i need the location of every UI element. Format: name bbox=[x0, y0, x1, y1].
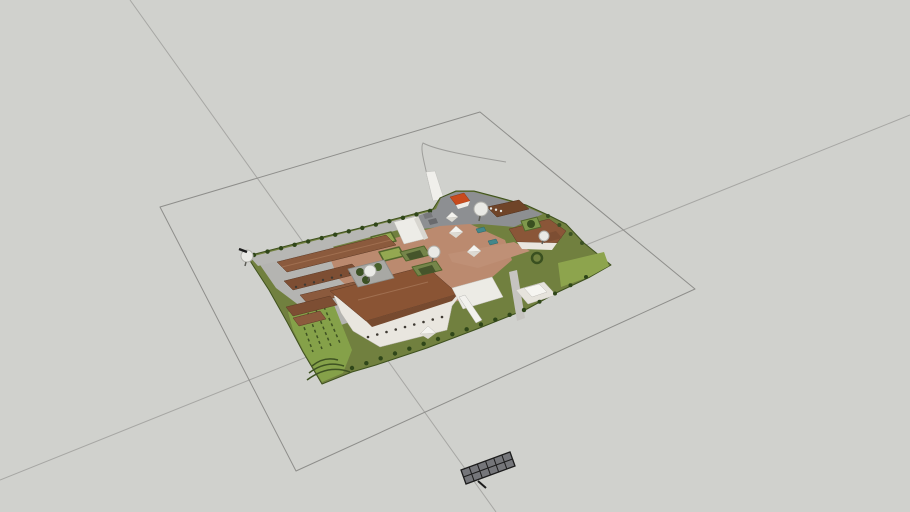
west-building-doors bbox=[295, 286, 297, 288]
perimeter-hedge-south bbox=[421, 342, 425, 346]
perimeter-hedge-north bbox=[265, 249, 269, 253]
perimeter-hedge-north bbox=[414, 212, 418, 216]
perimeter-hedge-north bbox=[374, 222, 378, 226]
perimeter-hedge-south bbox=[364, 361, 368, 365]
perimeter-hedge-south bbox=[507, 313, 511, 317]
west-building-doors bbox=[304, 283, 306, 285]
white-ball-tree bbox=[474, 202, 488, 216]
perimeter-hedge-south bbox=[436, 337, 440, 341]
parking-stripes bbox=[500, 210, 502, 212]
model-viewport-canvas[interactable] bbox=[0, 0, 910, 512]
main-building-windows bbox=[431, 318, 434, 321]
perimeter-hedge-southeast bbox=[522, 308, 526, 312]
tree-trunk bbox=[432, 258, 433, 262]
white-ball-tree bbox=[428, 246, 440, 258]
perimeter-hedge-north bbox=[306, 239, 310, 243]
main-building-windows bbox=[413, 323, 416, 326]
perimeter-hedge-east bbox=[546, 214, 550, 218]
perimeter-hedge-south bbox=[464, 327, 468, 331]
parking-stripes bbox=[490, 207, 492, 209]
perimeter-hedge-southeast bbox=[553, 292, 557, 296]
perimeter-hedge-north bbox=[387, 219, 391, 223]
main-building-windows bbox=[367, 336, 370, 339]
main-building-windows bbox=[376, 333, 379, 336]
perimeter-hedge-east bbox=[557, 223, 561, 227]
west-building-doors bbox=[322, 279, 324, 281]
white-ball-tree bbox=[539, 231, 549, 241]
perimeter-hedge-north bbox=[401, 216, 405, 220]
perimeter-hedge-south bbox=[450, 332, 454, 336]
tree-trunk bbox=[245, 262, 246, 266]
main-building-windows bbox=[441, 316, 444, 319]
west-building-doors bbox=[331, 276, 333, 278]
perimeter-hedge-south bbox=[407, 346, 411, 350]
main-building-windows bbox=[385, 331, 388, 334]
perimeter-hedge-south bbox=[393, 351, 397, 355]
tree-trunk bbox=[542, 241, 543, 244]
west-building-doors bbox=[340, 274, 342, 276]
parking-stripes bbox=[495, 209, 497, 211]
perimeter-hedge-southeast bbox=[569, 283, 573, 287]
garden-square-tree bbox=[527, 220, 535, 228]
perimeter-hedge-southeast bbox=[584, 275, 588, 279]
perimeter-hedge-south bbox=[378, 356, 382, 360]
main-building-windows bbox=[422, 321, 425, 324]
perimeter-hedge-north bbox=[347, 229, 351, 233]
perimeter-hedge-southeast bbox=[538, 300, 542, 304]
perimeter-hedge-north bbox=[319, 236, 323, 240]
white-ball-tree bbox=[364, 265, 376, 277]
perimeter-hedge-north bbox=[292, 243, 296, 247]
perimeter-hedge-south bbox=[479, 322, 483, 326]
perimeter-hedge-north bbox=[279, 246, 283, 250]
plaza-tree bbox=[356, 268, 364, 276]
perimeter-hedge-east bbox=[569, 232, 573, 236]
perimeter-hedge-south bbox=[493, 317, 497, 321]
perimeter-hedge-north bbox=[360, 226, 364, 230]
perimeter-hedge-south bbox=[350, 366, 354, 370]
main-building-windows bbox=[394, 328, 397, 331]
viewer-stage bbox=[0, 0, 910, 512]
tree-trunk bbox=[479, 216, 480, 221]
tree-trunk bbox=[368, 277, 369, 281]
main-building-windows bbox=[404, 326, 407, 329]
perimeter-hedge-east bbox=[580, 241, 584, 245]
west-building-doors bbox=[313, 281, 315, 283]
perimeter-hedge-north bbox=[333, 232, 337, 236]
east-building-wall bbox=[517, 242, 557, 250]
